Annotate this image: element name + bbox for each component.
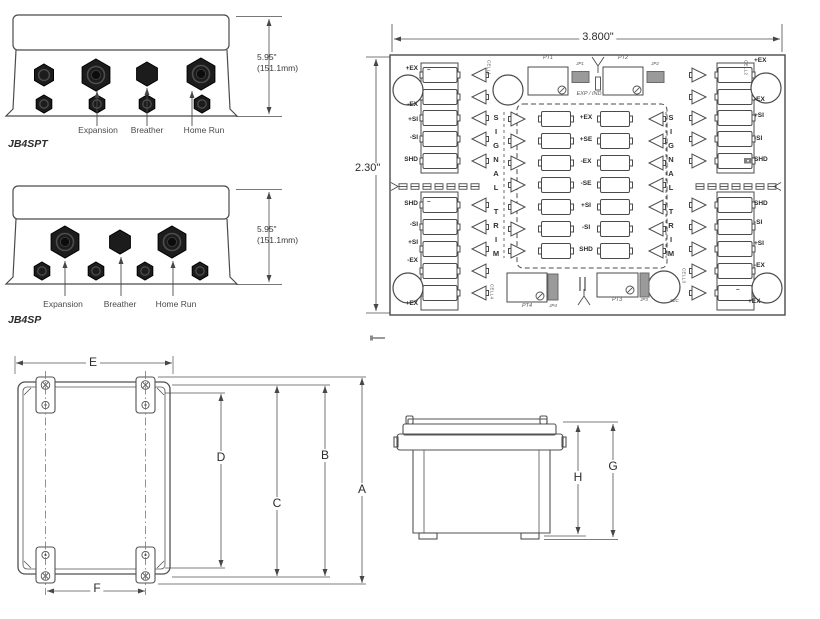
terminal-label: +EX [580, 115, 592, 122]
dim-a-label: A [355, 483, 369, 496]
fork-symbol-top [592, 57, 604, 73]
enclosure-dimensions [15, 356, 366, 591]
jp4-label: JP4 [549, 304, 557, 309]
terminal-label: -SI [410, 222, 418, 229]
dim-b-label: B [318, 449, 332, 462]
cell1-label: CELL1 [486, 60, 491, 75]
terminal-label: -SI [410, 135, 418, 142]
terminal-label: -SI [582, 225, 590, 232]
terminal-label: -EX [754, 97, 765, 104]
jb4spt-model-label: JB4SPT [8, 139, 48, 150]
jp2-label: JP2 [651, 62, 659, 67]
line-art [0, 0, 820, 619]
pt4-label: PT4 [522, 304, 532, 310]
signal-text-right: S I G N A L [665, 111, 677, 195]
terminal-label: +SI [754, 241, 764, 248]
terminal-label: -EX [754, 263, 765, 270]
minus-mark: – [427, 67, 431, 74]
terminal-label: +SI [408, 117, 418, 124]
jb4spt-expansion-label: Expansion [78, 126, 118, 135]
jb4sp-breather-label: Breather [104, 300, 137, 309]
terminal-label: SHD [404, 201, 418, 208]
dim-e-label: E [86, 356, 100, 369]
terminal-label: -EX [581, 159, 592, 166]
enclosure-back-drawing [15, 356, 366, 595]
s2c-label: S2C [670, 299, 679, 304]
mounting-tabs [36, 377, 155, 583]
terminal-label: +SE [580, 137, 592, 144]
datasheet-page: Expansion Breather Home Run 5.95" (151.1… [0, 0, 820, 619]
terminal-label: SHD [754, 201, 768, 208]
jb4spt-height-dim-mm: (151.1mm) [257, 64, 298, 73]
pcb-height-dim: 2.30" [352, 163, 383, 175]
pt2-label: PT2 [618, 56, 628, 62]
fork-symbol-bottom [578, 289, 590, 305]
terminal-label: +EX [406, 301, 418, 308]
jb4sp-drawing [6, 186, 282, 296]
signal-text-left: S I G N A L [490, 111, 502, 195]
terminal-label: -EX [407, 102, 418, 109]
jb4spt-homerun-label: Home Run [184, 126, 225, 135]
terminal-label: SHD [754, 157, 768, 164]
trim-text-left: T R I M [490, 205, 502, 261]
dim-g-label: G [605, 460, 620, 473]
dim-h-label: H [571, 471, 586, 484]
cell3-label: CELL3 [681, 268, 686, 283]
jb4spt-breather-label: Breather [131, 126, 164, 135]
pt1-label: PT1 [543, 56, 553, 62]
dim-f-label: F [90, 582, 103, 595]
cell2-label: CELL2 [743, 60, 748, 75]
terminal-label: +EX [406, 66, 418, 73]
minus-mark: – [427, 199, 431, 206]
jb4sp-height-dim: 5.95" [257, 225, 277, 234]
terminal-label: +EX [754, 58, 766, 65]
pt3-label: PT3 [612, 298, 622, 304]
terminal-label: +SI [754, 113, 764, 120]
jb4spt-height-dim: 5.95" [257, 53, 277, 62]
trim-text-right: T R I M [665, 205, 677, 261]
dim-d-label: D [214, 451, 229, 464]
terminal-label: -SI [754, 220, 762, 227]
terminal-label: +EX [748, 299, 760, 306]
terminal-label: -EX [407, 258, 418, 265]
dim-c-label: C [270, 497, 285, 510]
terminal-label: SHD [404, 157, 418, 164]
jb4spt-glands [35, 58, 215, 113]
cell4-label: CELL4 [489, 284, 494, 299]
terminal-label: -SI [754, 136, 762, 143]
minus-mark: – [736, 287, 740, 294]
jb4spt-drawing [6, 15, 282, 126]
jb4sp-model-label: JB4SP [8, 315, 41, 326]
exp-ind-label: EXP / IND [577, 92, 602, 98]
jb4sp-homerun-label: Home Run [156, 300, 197, 309]
jp3-label: JP3 [640, 298, 648, 303]
terminal-label: -SE [581, 181, 592, 188]
terminal-label: SHD [579, 247, 593, 254]
terminal-label: +SI [408, 240, 418, 247]
jb4sp-expansion-label: Expansion [43, 300, 83, 309]
pcb-width-dim: 3.800" [579, 32, 616, 44]
jb4sp-height-dim-mm: (151.1mm) [257, 236, 298, 245]
terminal-label: +SI [581, 203, 591, 210]
jp1-label: JP1 [576, 62, 584, 67]
jb4sp-callout-arrows [65, 257, 173, 296]
